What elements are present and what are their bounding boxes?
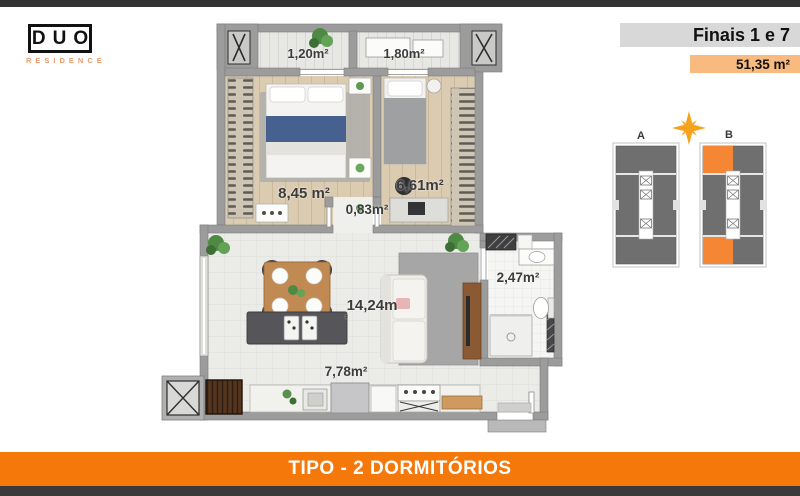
wall-mirror (427, 79, 441, 93)
highlight-unit-bottom (703, 237, 733, 264)
bedroom-1-door (327, 207, 331, 227)
double-bed (266, 84, 346, 178)
column-nw (228, 31, 250, 64)
tower-b (700, 143, 766, 267)
north-star-icon (672, 111, 706, 145)
column-ne (472, 31, 496, 65)
floorplan-graphic (0, 0, 800, 496)
tower-b-label: B (714, 129, 744, 141)
fridge (331, 383, 369, 413)
toilet (534, 298, 555, 319)
pantry-cabinet (206, 380, 242, 414)
nightstand-plant (356, 82, 364, 90)
balcony-2-units (366, 38, 443, 57)
bedroom-divider-wall (373, 76, 381, 197)
kitchen-plant (283, 390, 292, 399)
desk-chair (395, 177, 413, 195)
single-bed (384, 78, 426, 164)
elevator-shaft (162, 376, 204, 420)
bedroom-2-door (375, 207, 379, 227)
wardrobe-2 (451, 88, 475, 226)
kitchen-furniture (250, 383, 482, 413)
bedroom-2-balcony-door (388, 70, 428, 75)
highlight-unit-top (703, 146, 733, 173)
kitchen-island (247, 312, 347, 344)
page: DUO RESIDENCE Finais 1 e 7 51,35 m² (0, 0, 800, 496)
unit-type-title: TIPO - 2 DORMITÓRIOS (288, 458, 511, 480)
footer-type-bar: TIPO - 2 DORMITÓRIOS (0, 452, 800, 486)
plant-bedroom-hall (356, 204, 364, 212)
laptop (408, 202, 425, 215)
cabinet (371, 386, 396, 412)
sofa (381, 275, 427, 363)
tower-a-label: A (626, 130, 656, 142)
shower (490, 314, 532, 356)
balcony-1-floor (252, 31, 349, 69)
wood-shelf (442, 396, 482, 409)
stove (398, 385, 440, 412)
entry-doormat (498, 403, 531, 412)
hall-floor (333, 197, 373, 233)
bedroom-1-balcony-door (300, 70, 344, 75)
wardrobe-1 (228, 78, 253, 218)
sofa-pillow (396, 298, 410, 309)
entry-landing (488, 420, 546, 432)
footer-dark-strip (0, 486, 800, 496)
tower-a (613, 143, 679, 267)
bathroom-door (481, 248, 486, 280)
tv-panel (463, 283, 481, 359)
column-living-ne (486, 234, 532, 250)
living-window (200, 256, 208, 356)
